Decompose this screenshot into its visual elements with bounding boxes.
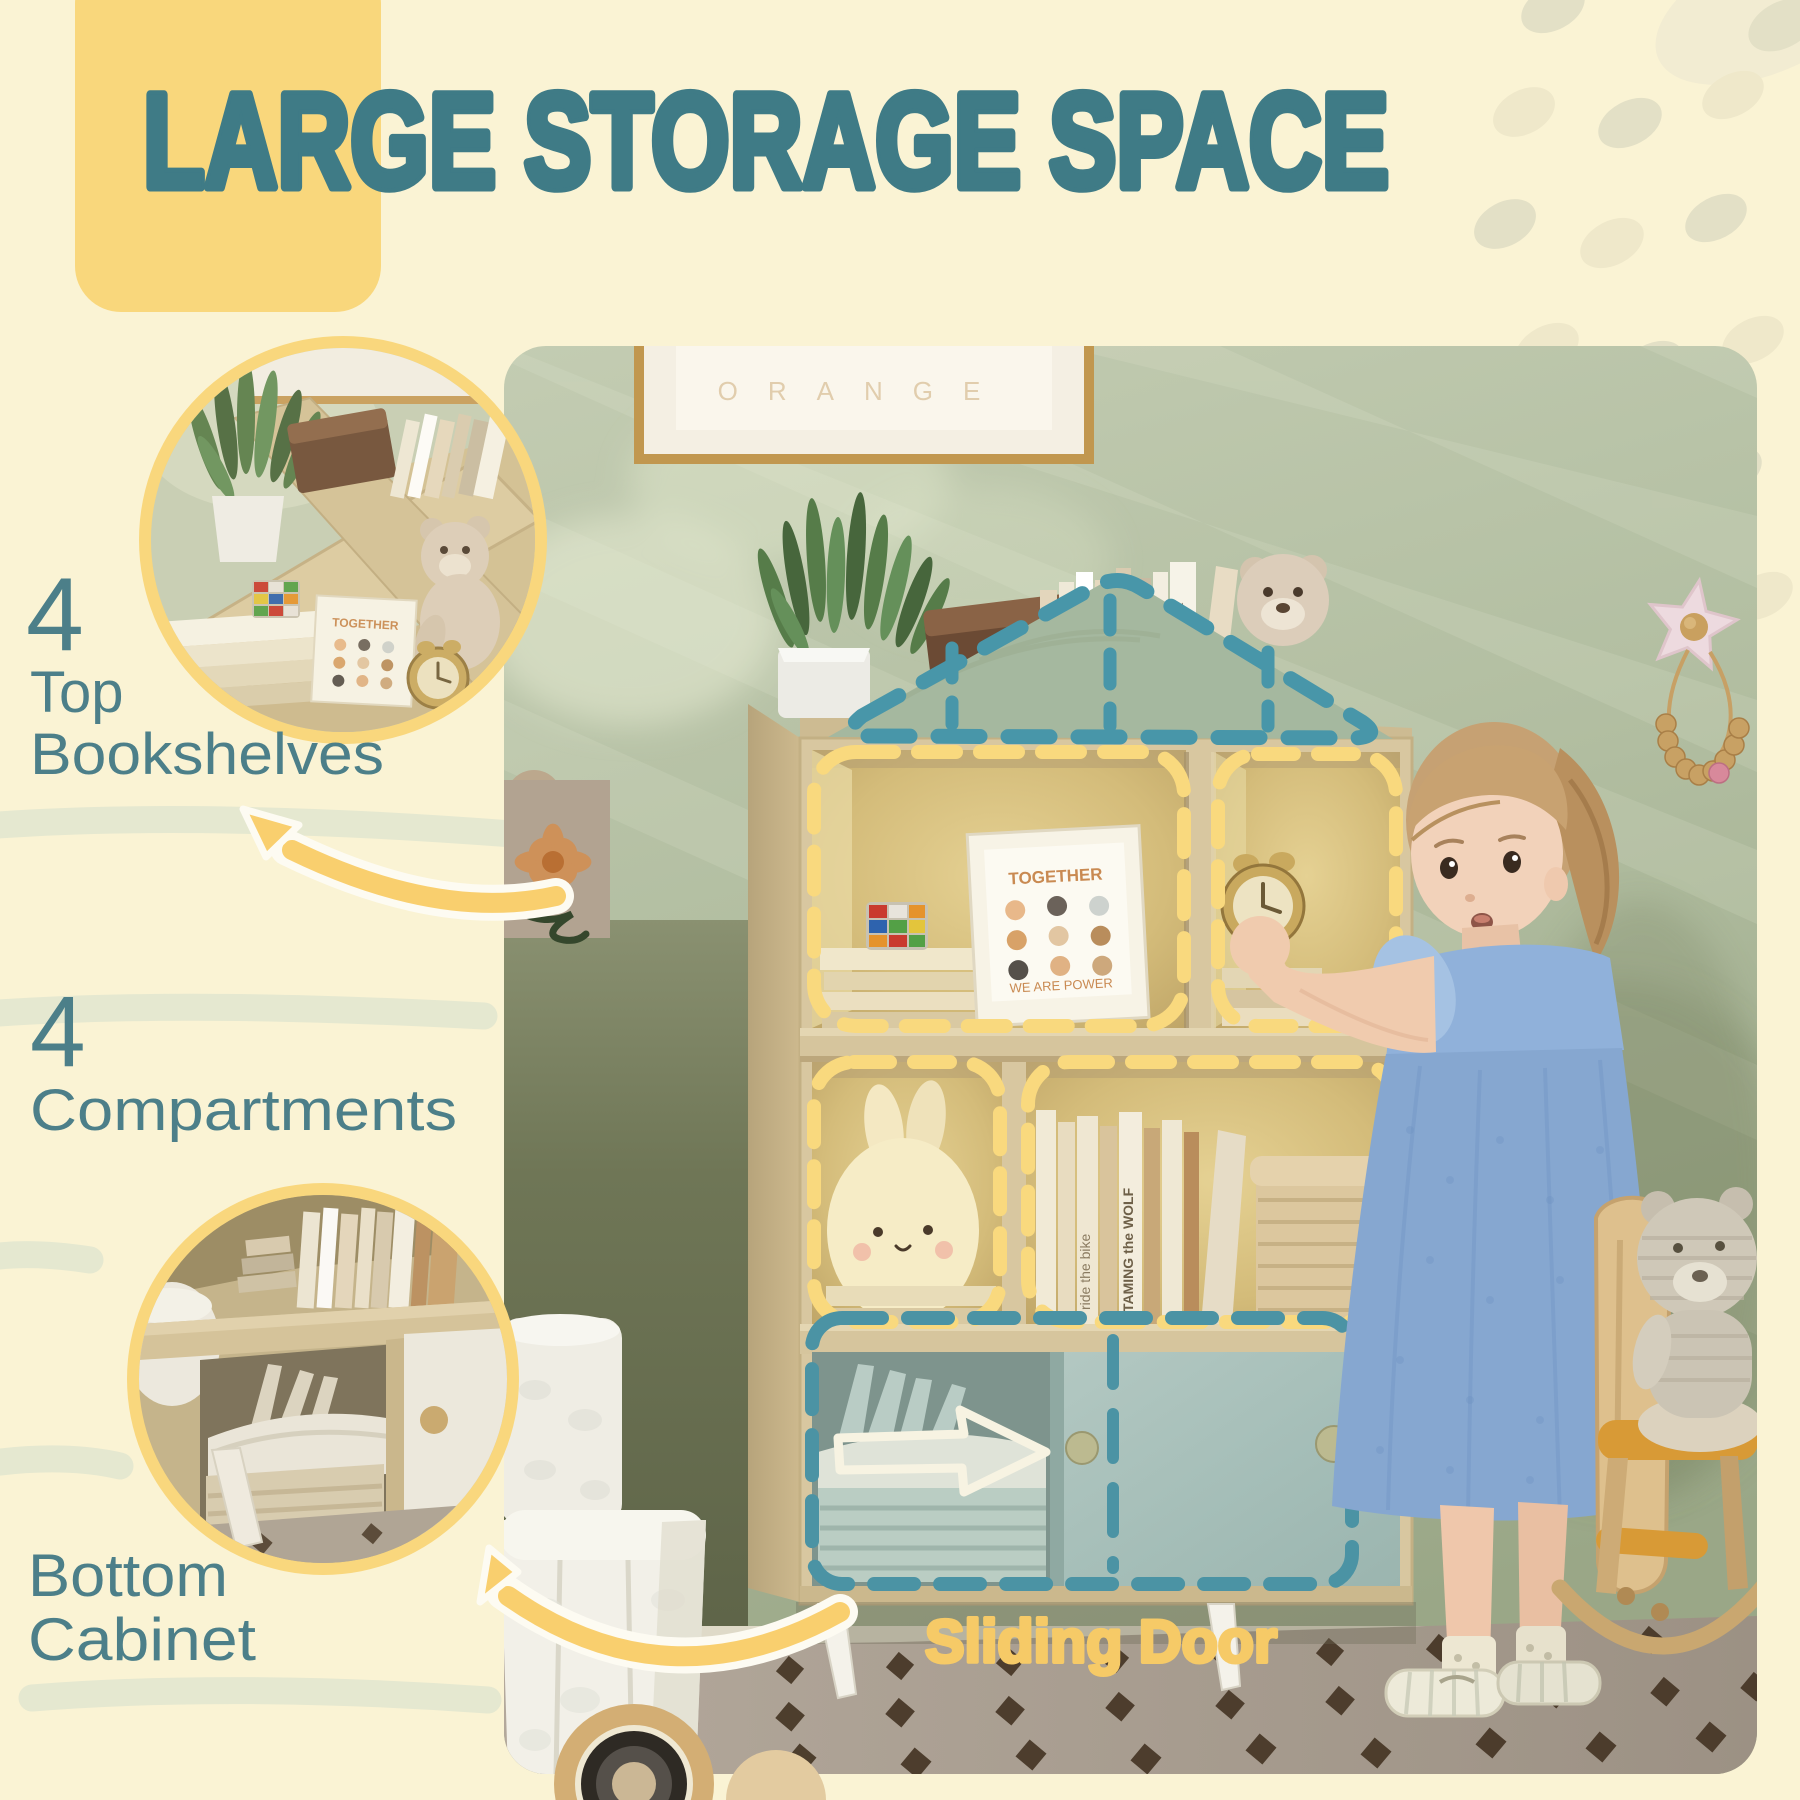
svg-text:LARGE STORAGE SPACE: LARGE STORAGE SPACE [143, 67, 1389, 216]
svg-text:4: 4 [26, 557, 84, 673]
svg-text:Cabinet: Cabinet [28, 1606, 256, 1673]
svg-text:ride the bike: ride the bike [1077, 1234, 1093, 1310]
svg-text:Bottom: Bottom [28, 1542, 228, 1609]
svg-text:Sliding Door: Sliding Door [925, 1608, 1277, 1675]
svg-text:4: 4 [30, 976, 86, 1088]
svg-text:Top: Top [30, 660, 124, 725]
svg-text:Bookshelves: Bookshelves [30, 722, 384, 787]
svg-text:ORANGE: ORANGE [718, 376, 1011, 406]
svg-text:TAMING the WOLF: TAMING the WOLF [1120, 1187, 1136, 1312]
svg-text:Compartments: Compartments [30, 1078, 457, 1143]
